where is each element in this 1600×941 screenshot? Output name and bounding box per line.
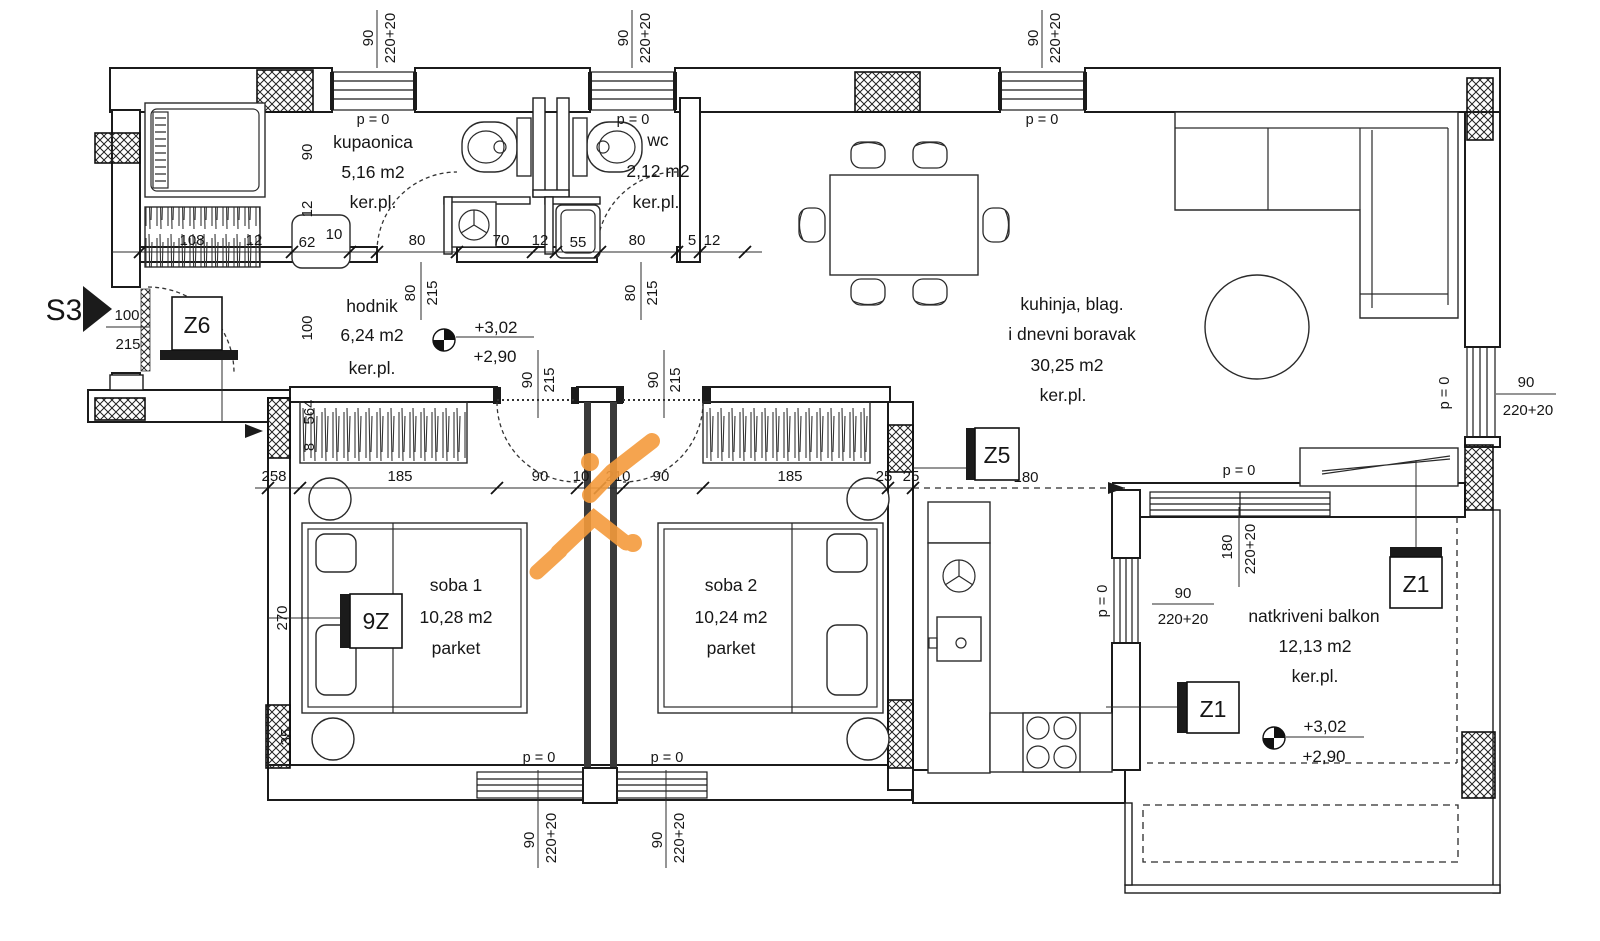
dim-90b: 90 (653, 468, 670, 485)
marker-z5: Z5 (984, 442, 1011, 468)
entrance-opening (141, 289, 150, 371)
marker-z1-left: Z1 (1200, 696, 1227, 722)
section-arrow-icon (83, 286, 112, 332)
dim-80b: 80 (629, 232, 646, 249)
window-top-1 (330, 72, 417, 110)
chair (851, 142, 885, 168)
p0-kitchen-window: p = 0 (1095, 585, 1111, 618)
dim-bot1-w: 90 (521, 832, 538, 849)
dim-left-12: 12 (299, 201, 316, 218)
dim-top1-h: 220+20 (382, 13, 399, 63)
label-soba1-area: 10,28 m2 (420, 607, 493, 627)
dim-door3-w: 90 (519, 372, 536, 389)
label-hodnik-floor: ker.pl. (349, 358, 396, 378)
dim-top3-w: 90 (1025, 30, 1042, 47)
sideboard (1300, 448, 1458, 486)
dim-rwin-w: 90 (1518, 374, 1535, 391)
dim-top3-h: 220+20 (1047, 13, 1064, 63)
dim-door1-h: 215 (424, 280, 441, 305)
dim-left-270: 270 (274, 605, 291, 630)
label-soba2-area: 10,24 m2 (695, 607, 768, 627)
level-hodnik-upper: +3,02 (474, 318, 517, 337)
wardrobe-soba2 (703, 402, 870, 463)
label-balkon-area: 12,13 m2 (1279, 636, 1352, 656)
window-top-3 (998, 72, 1087, 110)
dim-rwin-h: 220+20 (1503, 402, 1553, 419)
dim-left-90: 90 (299, 144, 316, 161)
p0-right-window: p = 0 (1437, 377, 1453, 410)
dim-10a: 10 (326, 226, 343, 243)
shower (452, 202, 496, 247)
chair (983, 208, 1009, 242)
level-marker-icon (1263, 727, 1285, 749)
dim-left-100: 100 (299, 315, 316, 340)
label-living-area: 30,25 m2 (1031, 355, 1104, 375)
floor-plan-drawing: 90 220+20 90 220+20 90 220+20 108 12 62 … (0, 0, 1600, 941)
chair (913, 279, 947, 305)
kitchen-counter (928, 502, 1112, 773)
stove (1023, 713, 1080, 772)
dim-12a: 12 (246, 232, 263, 249)
dim-12b: 12 (532, 232, 549, 249)
dim-top1-w: 90 (360, 30, 377, 47)
dim-top2-h: 220+20 (637, 13, 654, 63)
watermark-logo-icon (537, 441, 652, 572)
dim-door2-w: 80 (622, 285, 639, 302)
dim-kwin-w: 90 (1175, 585, 1192, 602)
dim-25a: 25 (876, 468, 893, 485)
label-wc: wc (646, 130, 669, 150)
level-balkon-lower: +2,90 (1302, 747, 1345, 766)
dim-left-8: 8 (301, 443, 318, 451)
dim-70: 70 (493, 232, 510, 249)
label-wc-floor: ker.pl. (633, 192, 680, 212)
label-kupaonica-area: 5,16 m2 (341, 162, 404, 182)
p0-soba2: p = 0 (651, 750, 684, 766)
dining-table (799, 142, 1009, 305)
dim-5: 5 (688, 232, 696, 249)
sofa (1175, 112, 1458, 318)
dim-entrance-h: 215 (115, 336, 140, 353)
label-hodnik: hodnik (346, 296, 398, 316)
dim-12c: 12 (704, 232, 721, 249)
dim-bot2-h: 220+20 (671, 813, 688, 863)
p0-soba1: p = 0 (523, 750, 556, 766)
dim-90a: 90 (532, 468, 549, 485)
dim-door1-w: 80 (402, 285, 419, 302)
dim-entrance-w: 100 (114, 307, 139, 324)
label-kupaonica-floor: ker.pl. (350, 192, 397, 212)
window-post (583, 768, 617, 803)
bed-soba1 (302, 478, 527, 760)
label-soba1-floor: parket (432, 638, 481, 658)
chair (913, 142, 947, 168)
label-wc-area: 2,12 m2 (626, 161, 689, 181)
dim-kwin-h: 220+20 (1158, 611, 1208, 628)
label-soba2: soba 2 (705, 575, 758, 595)
level-marker-icon (433, 329, 455, 351)
p0-living-top: p = 0 (1026, 112, 1059, 128)
bathtub (145, 103, 265, 197)
dim-door2-h: 215 (644, 280, 661, 305)
p0-wc: p = 0 (617, 112, 650, 128)
coffee-table (1205, 275, 1309, 379)
dim-door4-w: 90 (645, 372, 662, 389)
window-top-2 (588, 72, 677, 110)
dim-bot1-h: 220+20 (543, 813, 560, 863)
bed-soba2 (658, 478, 889, 760)
dim-62: 62 (299, 234, 316, 251)
label-living-1: kuhinja, blag. (1020, 294, 1123, 314)
level-balkon-upper: +3,02 (1303, 717, 1346, 736)
dim-top2-w: 90 (615, 30, 632, 47)
marker-z1-top: Z1 (1403, 571, 1430, 597)
label-living-floor: ker.pl. (1040, 385, 1087, 405)
dim-185b: 185 (777, 468, 802, 485)
dim-door3-h: 215 (541, 367, 558, 392)
label-kupaonica: kupaonica (333, 132, 413, 152)
level-hodnik-lower: +2,90 (473, 347, 516, 366)
dim-door4-h: 215 (667, 367, 684, 392)
marker-z6-soba1: Z6 (363, 608, 390, 634)
dim-balcony-door-h: 220+20 (1242, 524, 1259, 574)
label-balkon-floor: ker.pl. (1292, 666, 1339, 686)
dim-left-35: 35 (278, 729, 295, 746)
label-hodnik-area: 6,24 m2 (340, 325, 403, 345)
dim-bot2-w: 90 (649, 832, 666, 849)
chair (799, 208, 825, 242)
marker-z6-top: Z6 (184, 312, 211, 338)
window-kitchen (1114, 558, 1138, 643)
wardrobe-soba1 (300, 402, 467, 463)
dim-55: 55 (570, 234, 587, 251)
toilet-1 (462, 118, 531, 176)
label-soba2-floor: parket (707, 638, 756, 658)
dim-80a: 80 (409, 232, 426, 249)
label-soba1: soba 1 (430, 575, 483, 595)
dim-left-564: 564 (301, 399, 318, 424)
floor-plan-page: 90 220+20 90 220+20 90 220+20 108 12 62 … (0, 0, 1600, 941)
dim-balcony-door-w: 180 (1219, 534, 1236, 559)
dim-25b: 25 (903, 468, 920, 485)
p0-kupaonica: p = 0 (357, 112, 390, 128)
dim-108: 108 (179, 232, 204, 249)
p0-balcony: p = 0 (1223, 463, 1256, 479)
section-marker-s3: S3 (46, 294, 83, 327)
dim-258: 258 (261, 468, 286, 485)
label-balkon: natkriveni balkon (1248, 606, 1379, 626)
window-living-right (1467, 347, 1495, 437)
chair (851, 279, 885, 305)
dim-10b: 10 (573, 468, 590, 485)
dim-185a: 185 (387, 468, 412, 485)
label-living-2: i dnevni boravak (1008, 324, 1136, 344)
